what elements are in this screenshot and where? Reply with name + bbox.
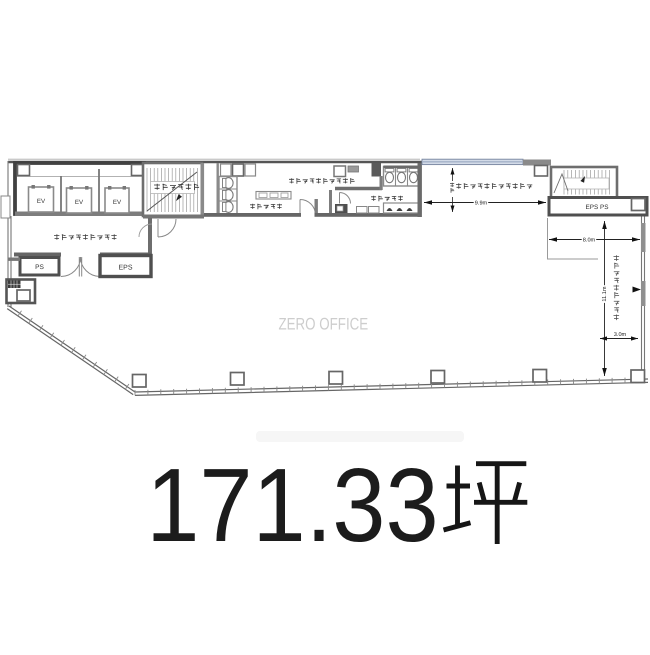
svg-text:9.9m: 9.9m: [475, 201, 488, 207]
svg-text:8.0m: 8.0m: [583, 238, 596, 244]
svg-text:EV: EV: [113, 199, 122, 206]
svg-text:EV: EV: [75, 199, 84, 206]
svg-text:3.0m: 3.0m: [614, 332, 627, 338]
svg-text:EPS: EPS: [118, 265, 132, 272]
svg-text:ZERO OFFICE: ZERO OFFICE: [279, 315, 369, 334]
svg-text:11.1m: 11.1m: [602, 286, 608, 301]
svg-text:EV: EV: [37, 198, 46, 205]
svg-text:171.33: 171.33: [146, 447, 438, 564]
svg-text:EPS PS: EPS PS: [585, 204, 608, 211]
svg-text:PS: PS: [35, 264, 44, 271]
